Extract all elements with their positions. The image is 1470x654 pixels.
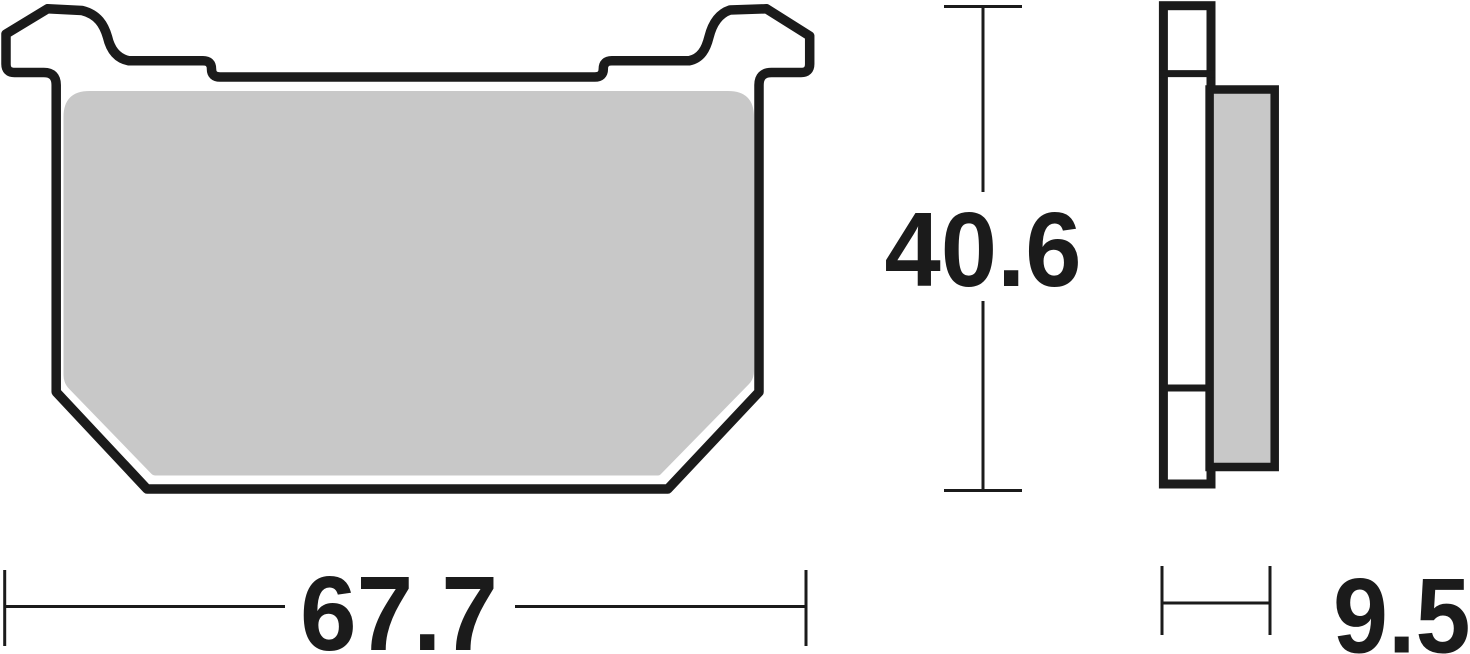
svg-text:40.6: 40.6 — [885, 191, 1082, 309]
svg-text:9.5: 9.5 — [1333, 556, 1470, 654]
svg-text:67.7: 67.7 — [300, 555, 498, 654]
